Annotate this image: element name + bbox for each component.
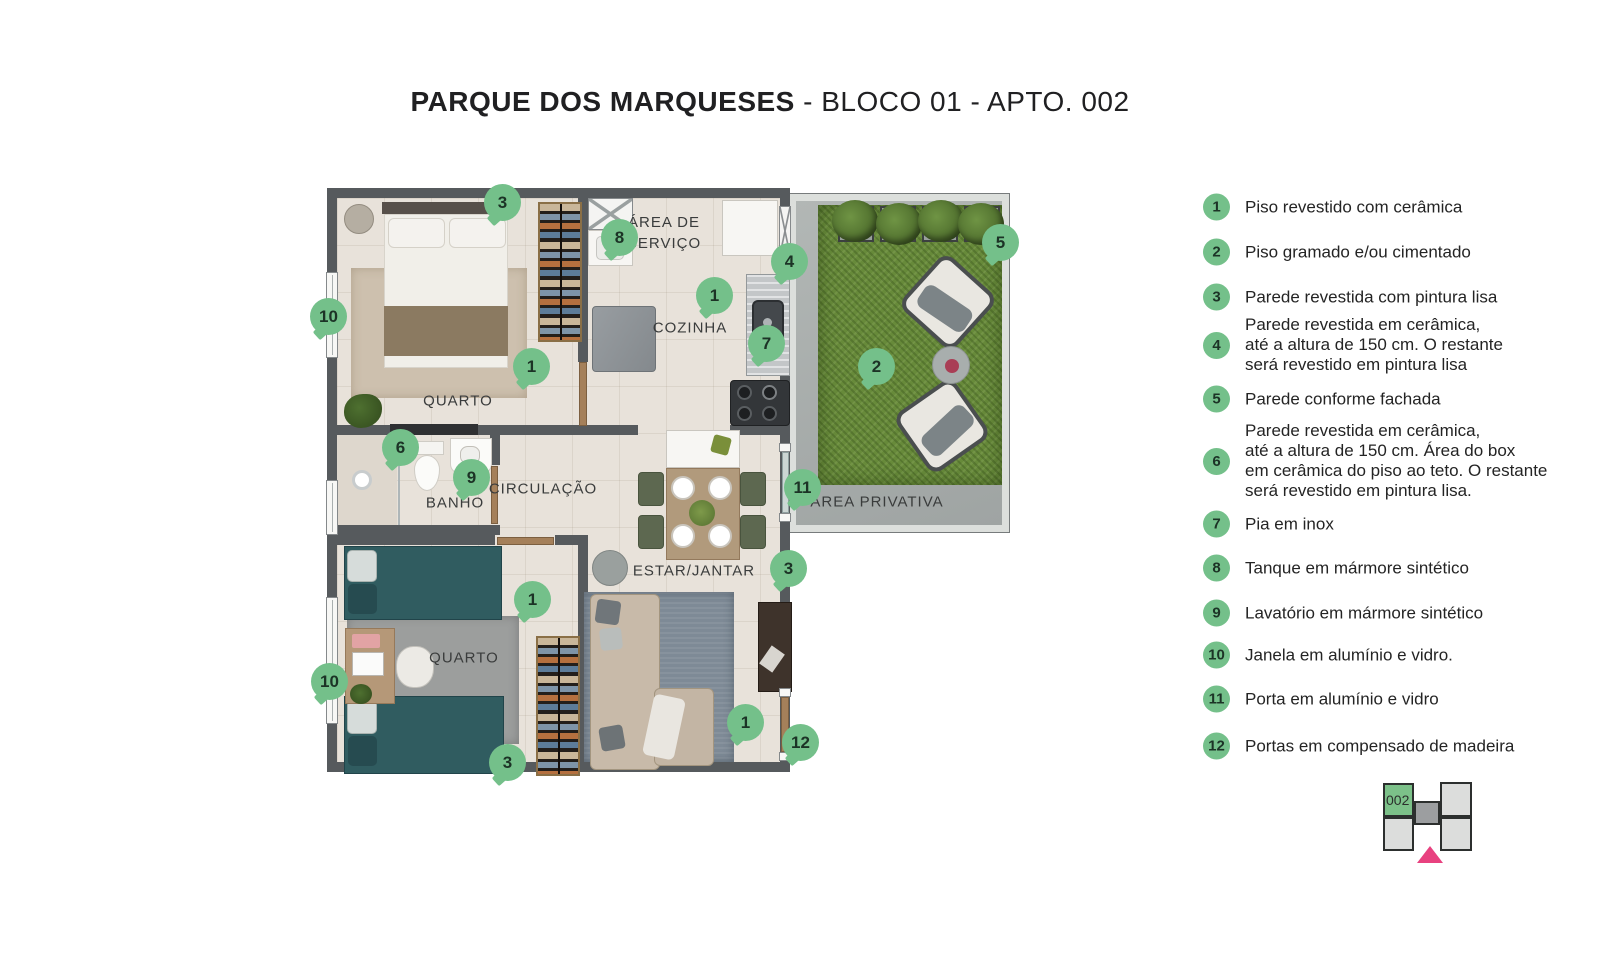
- legend-number: 9: [1203, 600, 1230, 627]
- legend-text: Parede revestida em cerâmica, até a altu…: [1245, 421, 1547, 501]
- legend-item-11: 11Porta em alumínio e vidro: [1203, 686, 1439, 713]
- room-label-quarto-2: QUARTO: [429, 648, 499, 669]
- room-label-banho: BANHO: [426, 493, 484, 514]
- desk-book: [352, 634, 380, 648]
- plan-marker-10: 10: [310, 298, 347, 335]
- plan-marker-6: 6: [382, 429, 419, 466]
- centerpiece-plant: [689, 500, 715, 526]
- room-label-quarto-1: QUARTO: [423, 391, 493, 412]
- sofa-pillow: [598, 724, 626, 752]
- plan-marker-1: 1: [513, 348, 550, 385]
- legend-number: 4: [1203, 332, 1230, 359]
- legend-text: Parede revestida com pintura lisa: [1245, 287, 1497, 307]
- keyplan-unit-label: 002: [1386, 792, 1409, 808]
- wall-top: [327, 188, 790, 198]
- wardrobe-quarto1: [538, 202, 582, 342]
- plate: [671, 524, 695, 548]
- legend-text: Parede conforme fachada: [1245, 389, 1441, 409]
- dining-chair: [740, 515, 766, 549]
- door-garden-frame: [779, 513, 791, 522]
- burner: [762, 385, 777, 400]
- keyplan-north-arrow: [1417, 846, 1443, 863]
- shower-head: [352, 470, 372, 490]
- kitchen-counter: [722, 200, 778, 256]
- plan-marker-1: 1: [514, 581, 551, 618]
- plan-marker-4: 4: [771, 243, 808, 280]
- bed-pillow: [348, 736, 377, 766]
- legend-text: Tanque em mármore sintético: [1245, 558, 1469, 578]
- laptop: [352, 652, 384, 676]
- fridge: [592, 306, 656, 372]
- legend-number: 5: [1203, 386, 1230, 413]
- legend-item-10: 10Janela em alumínio e vidro.: [1203, 642, 1453, 669]
- wall-cozinha-estar-left: [588, 425, 638, 435]
- burner: [737, 385, 752, 400]
- legend-number: 12: [1203, 733, 1230, 760]
- plan-marker-10: 10: [311, 663, 348, 700]
- plate: [708, 524, 732, 548]
- legend-text: Portas em compensado de madeira: [1245, 736, 1514, 756]
- page-title: PARQUE DOS MARQUESES - BLOCO 01 - APTO. …: [0, 86, 1540, 118]
- legend-number: 8: [1203, 555, 1230, 582]
- legend-item-7: 7Pia em inox: [1203, 511, 1334, 538]
- plan-marker-3: 3: [770, 550, 807, 587]
- legend-item-6: 6Parede revestida em cerâmica, até a alt…: [1203, 421, 1547, 501]
- legend-number: 2: [1203, 239, 1230, 266]
- legend-text: Piso gramado e/ou cimentado: [1245, 242, 1471, 262]
- bush: [876, 203, 922, 245]
- door-quarto1: [579, 362, 587, 426]
- unit-subtitle: - BLOCO 01 - APTO. 002: [795, 86, 1130, 117]
- bedside-table: [344, 204, 374, 234]
- legend-item-5: 5Parede conforme fachada: [1203, 386, 1441, 413]
- bush: [832, 200, 878, 242]
- window-quarto2: [326, 597, 338, 724]
- legend-number: 10: [1203, 642, 1230, 669]
- room-label-circulacao: CIRCULAÇÃO: [489, 479, 597, 500]
- keyplan-unit-002: 002: [1383, 783, 1414, 817]
- plan-marker-3: 3: [489, 744, 526, 781]
- room-label-cozinha: COZINHA: [653, 318, 728, 339]
- legend-text: Janela em alumínio e vidro.: [1245, 645, 1453, 665]
- legend-text: Parede revestida em cerâmica, até a altu…: [1245, 315, 1503, 375]
- bed-pillow: [347, 700, 377, 734]
- bed-pillow: [348, 584, 377, 614]
- keyplan-core: [1414, 801, 1440, 825]
- plan-marker-2: 2: [858, 348, 895, 385]
- legend-number: 11: [1203, 686, 1230, 713]
- legend-text: Piso revestido com cerâmica: [1245, 197, 1462, 217]
- legend-number: 1: [1203, 194, 1230, 221]
- window-banho: [326, 480, 338, 535]
- legend-number: 6: [1203, 448, 1230, 475]
- legend-item-2: 2Piso gramado e/ou cimentado: [1203, 239, 1471, 266]
- plan-marker-5: 5: [982, 224, 1019, 261]
- plate: [708, 476, 732, 500]
- legend-item-3: 3Parede revestida com pintura lisa: [1203, 284, 1497, 311]
- sofa-pillow: [594, 598, 621, 625]
- keyplan-unit: [1440, 817, 1472, 851]
- legend-item-12: 12Portas em compensado de madeira: [1203, 733, 1514, 760]
- bed-pillow: [347, 550, 377, 582]
- keyplan-unit: [1440, 782, 1472, 817]
- door-quarto2: [497, 537, 554, 545]
- sofa-pillow: [599, 627, 623, 651]
- plan-marker-7: 7: [748, 325, 785, 362]
- plan-marker-11: 11: [784, 469, 821, 506]
- burner: [762, 406, 777, 421]
- plate: [671, 476, 695, 500]
- plan-marker-12: 12: [782, 724, 819, 761]
- wall-quarto2-top-right: [555, 535, 588, 545]
- plan-marker-1: 1: [696, 277, 733, 314]
- legend-number: 3: [1203, 284, 1230, 311]
- dining-chair: [638, 472, 664, 506]
- plan-marker-1: 1: [727, 704, 764, 741]
- legend-text: Pia em inox: [1245, 514, 1334, 534]
- legend-text: Lavatório em mármore sintético: [1245, 603, 1483, 623]
- project-name: PARQUE DOS MARQUESES: [410, 86, 794, 117]
- legend-item-1: 1Piso revestido com cerâmica: [1203, 194, 1462, 221]
- dining-chair: [638, 515, 664, 549]
- door-garden-frame: [779, 443, 791, 452]
- legend-number: 7: [1203, 511, 1230, 538]
- keyplan-unit: [1383, 817, 1414, 851]
- desk-plant: [350, 684, 372, 704]
- dining-chair: [740, 472, 766, 506]
- legend-item-9: 9Lavatório em mármore sintético: [1203, 600, 1483, 627]
- wall-banho-bottom: [332, 525, 500, 535]
- wardrobe-quarto2: [536, 636, 580, 776]
- plan-marker-9: 9: [453, 459, 490, 496]
- side-table: [592, 550, 628, 586]
- plan-marker-3: 3: [484, 184, 521, 221]
- wall-quarto2-top-left: [332, 535, 495, 545]
- room-label-area-privativa: ÁREA PRIVATIVA: [810, 492, 943, 513]
- floorplan-page: PARQUE DOS MARQUESES - BLOCO 01 - APTO. …: [0, 0, 1600, 960]
- entry-door-frame: [779, 688, 791, 697]
- legend-text: Porta em alumínio e vidro: [1245, 689, 1439, 709]
- garden-coffee-table: [932, 346, 970, 384]
- plan-marker-8: 8: [601, 219, 638, 256]
- bed-pillow: [388, 218, 445, 248]
- burner: [737, 406, 752, 421]
- room-label-area-servico: ÁREA DE SERVIÇO: [627, 212, 701, 254]
- legend-item-4: 4Parede revestida em cerâmica, até a alt…: [1203, 315, 1503, 375]
- bed-blanket: [384, 306, 508, 356]
- legend-item-8: 8Tanque em mármore sintético: [1203, 555, 1469, 582]
- bush: [918, 200, 964, 242]
- room-label-estar-jantar: ESTAR/JANTAR: [633, 561, 755, 582]
